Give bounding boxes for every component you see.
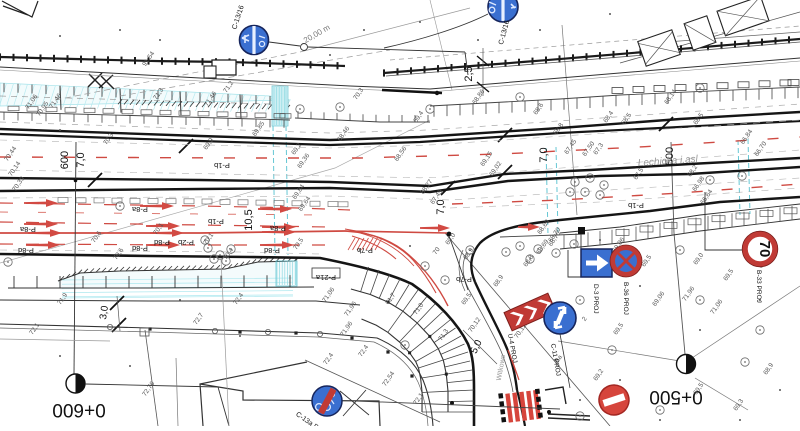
- svg-text:7,0: 7,0: [75, 152, 87, 167]
- svg-text:7,0: 7,0: [538, 147, 550, 162]
- svg-text:P-1b: P-1b: [214, 161, 230, 170]
- svg-text:3,0: 3,0: [98, 305, 111, 321]
- svg-text:10,5: 10,5: [243, 209, 255, 230]
- svg-text:P-8d: P-8d: [264, 246, 280, 255]
- svg-text:P-8a: P-8a: [131, 205, 148, 214]
- svg-text:P-2b: P-2b: [178, 238, 194, 247]
- svg-text:P-21a: P-21a: [315, 273, 336, 282]
- svg-text:P-8a: P-8a: [19, 225, 36, 234]
- svg-text:P-8d: P-8d: [154, 238, 170, 247]
- svg-text:2,5: 2,5: [463, 66, 475, 81]
- svg-text:B-33 PROJ: B-33 PROJ: [755, 270, 762, 303]
- svg-text:P-7b: P-7b: [456, 275, 472, 284]
- svg-text:B-36 PROJ: B-36 PROJ: [622, 282, 629, 315]
- svg-text:P-8d: P-8d: [18, 246, 34, 255]
- svg-text:P-8a: P-8a: [269, 224, 286, 233]
- svg-text:D-3 PROJ: D-3 PROJ: [592, 284, 599, 314]
- svg-text:70: 70: [756, 241, 773, 258]
- svg-text:600: 600: [59, 151, 71, 169]
- svg-text:P-1b: P-1b: [208, 217, 224, 226]
- svg-text:0+600: 0+600: [52, 399, 105, 420]
- svg-text:P-8d: P-8d: [132, 244, 148, 253]
- svg-text:P-1b: P-1b: [628, 201, 644, 210]
